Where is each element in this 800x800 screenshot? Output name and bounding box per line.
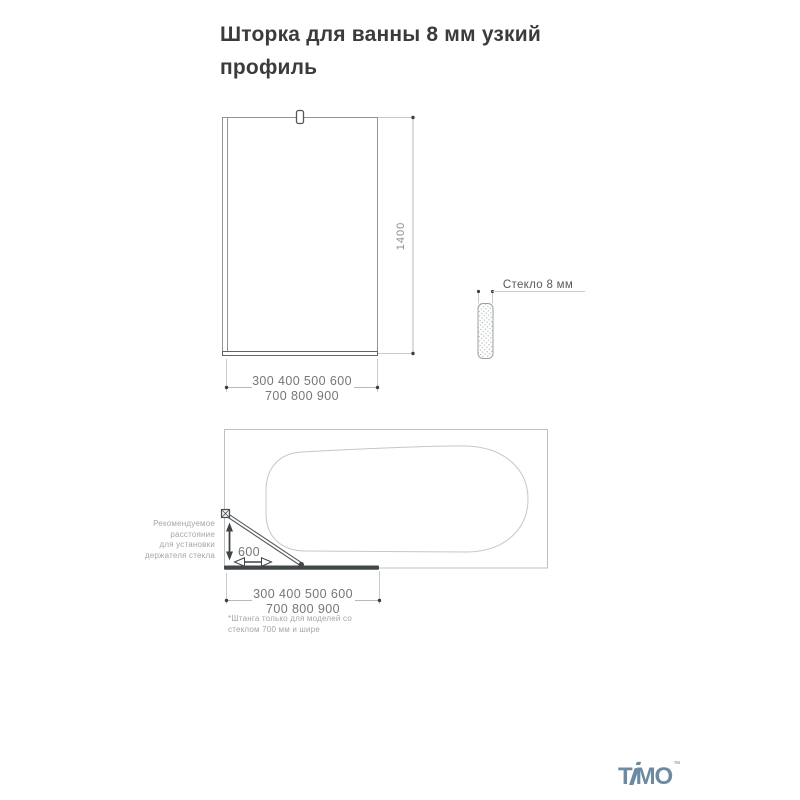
- dimension-dot: [376, 386, 379, 389]
- wall-mount: [222, 510, 230, 518]
- footnote: *Штанга только для моделей со стеклом 70…: [228, 614, 352, 635]
- logo-letters-mo: MO: [636, 763, 673, 791]
- support-bar-foot: [299, 562, 304, 567]
- dimension-dot: [411, 116, 414, 119]
- brand-logo: T i MO ™: [618, 756, 680, 793]
- glass-holder-bracket-icon: [297, 111, 304, 124]
- dimension-dot: [411, 352, 414, 355]
- dimension-dot: [225, 599, 228, 602]
- glass-panel: [223, 118, 378, 356]
- height-dimension-label: 1400: [395, 222, 407, 250]
- bottom-profile: [223, 352, 378, 356]
- width-options-line1: 300 400 500 600: [252, 374, 352, 388]
- front-view-height-dimension: 1400: [378, 116, 415, 355]
- front-view: [223, 111, 378, 356]
- trademark-symbol: ™: [673, 761, 680, 768]
- width-options-line2: 700 800 900: [265, 389, 339, 403]
- glass-side-view: Стекло 8 мм: [477, 279, 585, 359]
- bath-top-view: 600: [222, 430, 548, 570]
- technical-drawing: 1400 300 400 500 600 700 800 900 Стекло …: [0, 0, 800, 800]
- holder-distance-label: 600: [238, 545, 260, 559]
- dimension-dot: [378, 599, 381, 602]
- dimension-dot: [225, 386, 228, 389]
- front-view-width-dimension: 300 400 500 600 700 800 900: [225, 359, 379, 403]
- holder-note: Рекомендуемое расстояние для установки д…: [85, 519, 215, 561]
- glass-cross-section: [478, 304, 493, 359]
- top-view-width-dimension: 300 400 500 600 700 800 900: [225, 571, 381, 616]
- width-options-line1: 300 400 500 600: [253, 587, 353, 601]
- glass-thickness-label: Стекло 8 мм: [503, 279, 573, 291]
- dimension-dot: [477, 290, 480, 293]
